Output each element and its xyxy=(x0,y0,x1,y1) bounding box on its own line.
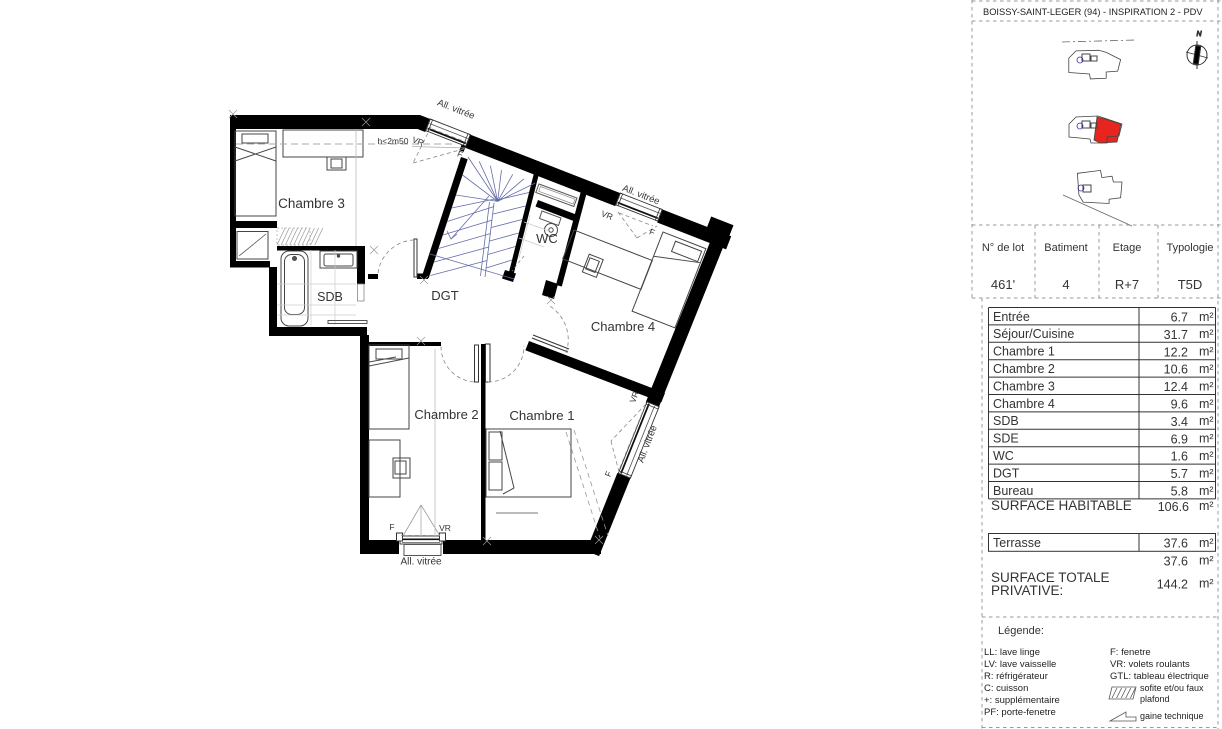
svg-text:m²: m² xyxy=(1199,484,1214,498)
svg-text:m²: m² xyxy=(1199,536,1214,550)
svg-text:Chambre 4: Chambre 4 xyxy=(993,397,1055,411)
svg-text:6.7: 6.7 xyxy=(1171,311,1188,325)
svg-text:DGT: DGT xyxy=(431,288,459,303)
svg-text:Bureau: Bureau xyxy=(993,484,1033,498)
svg-text:144.2: 144.2 xyxy=(1157,578,1188,592)
svg-text:Chambre 1: Chambre 1 xyxy=(993,345,1055,359)
svg-text:m²: m² xyxy=(1199,327,1214,341)
svg-text:Chambre 3: Chambre 3 xyxy=(278,196,345,211)
svg-text:Chambre 3: Chambre 3 xyxy=(993,379,1055,393)
svg-text:m²: m² xyxy=(1199,345,1214,359)
svg-text:T5D: T5D xyxy=(1178,277,1203,292)
svg-text:10.6: 10.6 xyxy=(1164,363,1188,377)
svg-text:Typologie: Typologie xyxy=(1166,242,1213,254)
svg-text:C: cuisson: C: cuisson xyxy=(984,683,1028,694)
svg-text:5.8: 5.8 xyxy=(1171,485,1188,499)
svg-text:4: 4 xyxy=(1062,277,1069,292)
svg-text:LL: lave linge: LL: lave linge xyxy=(984,647,1040,658)
svg-text:31.7: 31.7 xyxy=(1164,328,1188,342)
svg-text:gaine technique: gaine technique xyxy=(1140,711,1204,721)
svg-text:GTL: tableau électrique: GTL: tableau électrique xyxy=(1110,671,1209,682)
svg-text:PRIVATIVE:: PRIVATIVE: xyxy=(991,583,1063,598)
svg-text:m²: m² xyxy=(1199,499,1214,513)
svg-text:m²: m² xyxy=(1199,362,1214,376)
svg-text:LV: lave vaisselle: LV: lave vaisselle xyxy=(984,659,1056,670)
svg-text:+: supplémentaire: +: supplémentaire xyxy=(984,695,1060,706)
svg-text:m²: m² xyxy=(1199,310,1214,324)
svg-text:SURFACE HABITABLE: SURFACE HABITABLE xyxy=(991,498,1132,513)
svg-text:m²: m² xyxy=(1199,397,1214,411)
svg-text:Chambre 2: Chambre 2 xyxy=(993,362,1055,376)
svg-text:3.4: 3.4 xyxy=(1171,415,1188,429)
svg-text:VR: volets roulants: VR: volets roulants xyxy=(1110,659,1190,670)
svg-text:m²: m² xyxy=(1199,466,1214,480)
svg-text:m²: m² xyxy=(1199,414,1214,428)
svg-text:N° de lot: N° de lot xyxy=(982,242,1024,254)
svg-text:9.6: 9.6 xyxy=(1171,398,1188,412)
svg-text:461': 461' xyxy=(991,277,1015,292)
svg-text:WC: WC xyxy=(536,231,558,246)
svg-text:Etage: Etage xyxy=(1113,242,1142,254)
svg-text:12.2: 12.2 xyxy=(1164,345,1188,359)
svg-text:5.7: 5.7 xyxy=(1171,467,1188,481)
svg-text:SDE: SDE xyxy=(993,432,1019,446)
svg-text:All. vitrée: All. vitrée xyxy=(400,557,442,568)
svg-text:F: F xyxy=(389,522,394,532)
svg-text:h<2m50: h<2m50 xyxy=(378,136,409,146)
svg-text:37.6: 37.6 xyxy=(1164,537,1188,551)
svg-text:m²: m² xyxy=(1199,577,1214,591)
svg-text:R: réfrigérateur: R: réfrigérateur xyxy=(984,671,1048,682)
svg-text:Légende:: Légende: xyxy=(998,625,1044,637)
svg-text:Chambre 4: Chambre 4 xyxy=(591,319,655,334)
svg-text:DGT: DGT xyxy=(993,466,1020,480)
svg-text:R+7: R+7 xyxy=(1115,277,1139,292)
svg-text:106.6: 106.6 xyxy=(1158,500,1189,514)
svg-text:VR: VR xyxy=(439,523,451,533)
svg-text:BOISSY-SAINT-LEGER (94) - INSP: BOISSY-SAINT-LEGER (94) - INSPIRATION 2 … xyxy=(983,7,1203,17)
svg-text:Chambre 2: Chambre 2 xyxy=(414,407,478,422)
svg-text:6.9: 6.9 xyxy=(1171,432,1188,446)
svg-text:Séjour/Cuisine: Séjour/Cuisine xyxy=(993,327,1074,341)
svg-text:m²: m² xyxy=(1199,449,1214,463)
svg-text:Entrée: Entrée xyxy=(993,310,1030,324)
svg-text:PF: porte-fenetre: PF: porte-fenetre xyxy=(984,707,1056,718)
svg-text:Chambre 1: Chambre 1 xyxy=(509,408,574,423)
svg-text:m²: m² xyxy=(1199,379,1214,393)
svg-text:37.6: 37.6 xyxy=(1164,554,1188,568)
svg-text:12.4: 12.4 xyxy=(1164,380,1188,394)
svg-text:plafond: plafond xyxy=(1140,694,1170,704)
svg-text:m²: m² xyxy=(1199,554,1214,568)
svg-text:sofite et/ou faux: sofite et/ou faux xyxy=(1140,683,1204,693)
svg-text:SDB: SDB xyxy=(993,414,1019,428)
svg-text:Terrasse: Terrasse xyxy=(993,536,1041,550)
svg-text:F: fenetre: F: fenetre xyxy=(1110,647,1151,658)
svg-text:SDB: SDB xyxy=(317,290,343,304)
svg-text:Batiment: Batiment xyxy=(1044,242,1087,254)
svg-text:WC: WC xyxy=(993,449,1014,463)
svg-text:m²: m² xyxy=(1199,432,1214,446)
svg-text:1.6: 1.6 xyxy=(1171,450,1188,464)
